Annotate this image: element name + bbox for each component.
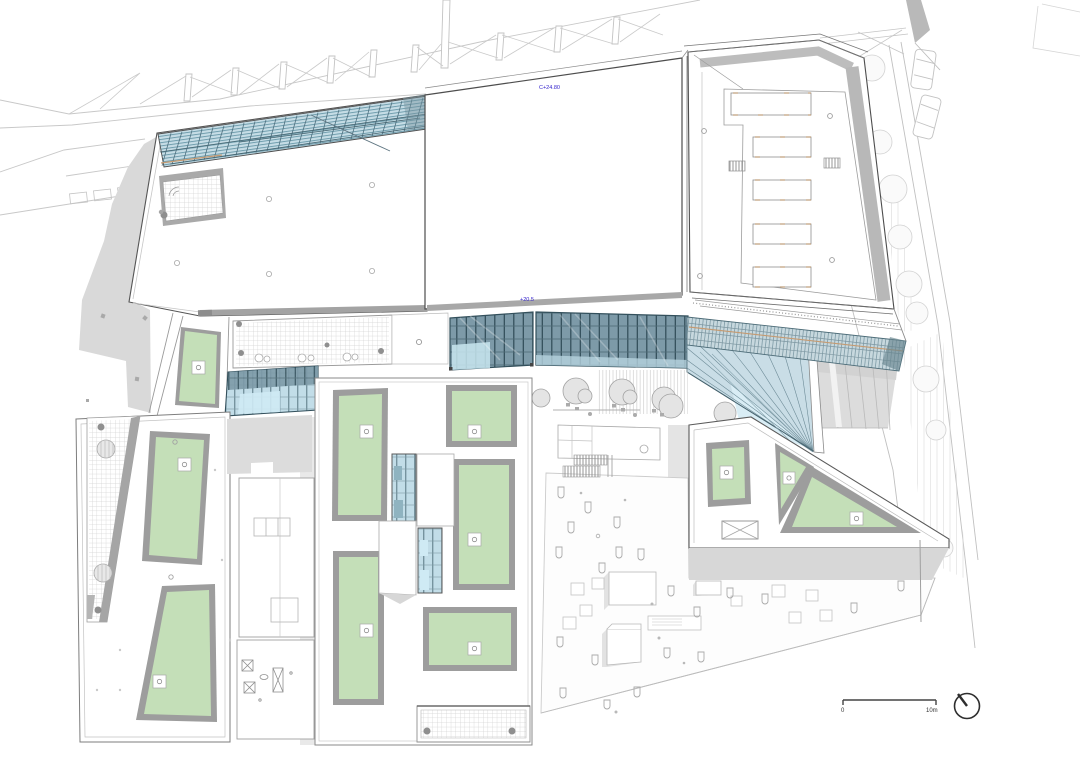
svg-text:+20.5: +20.5 (520, 297, 534, 303)
svg-text:10m: 10m (926, 708, 938, 714)
svg-text:C+24.80: C+24.80 (539, 85, 560, 91)
